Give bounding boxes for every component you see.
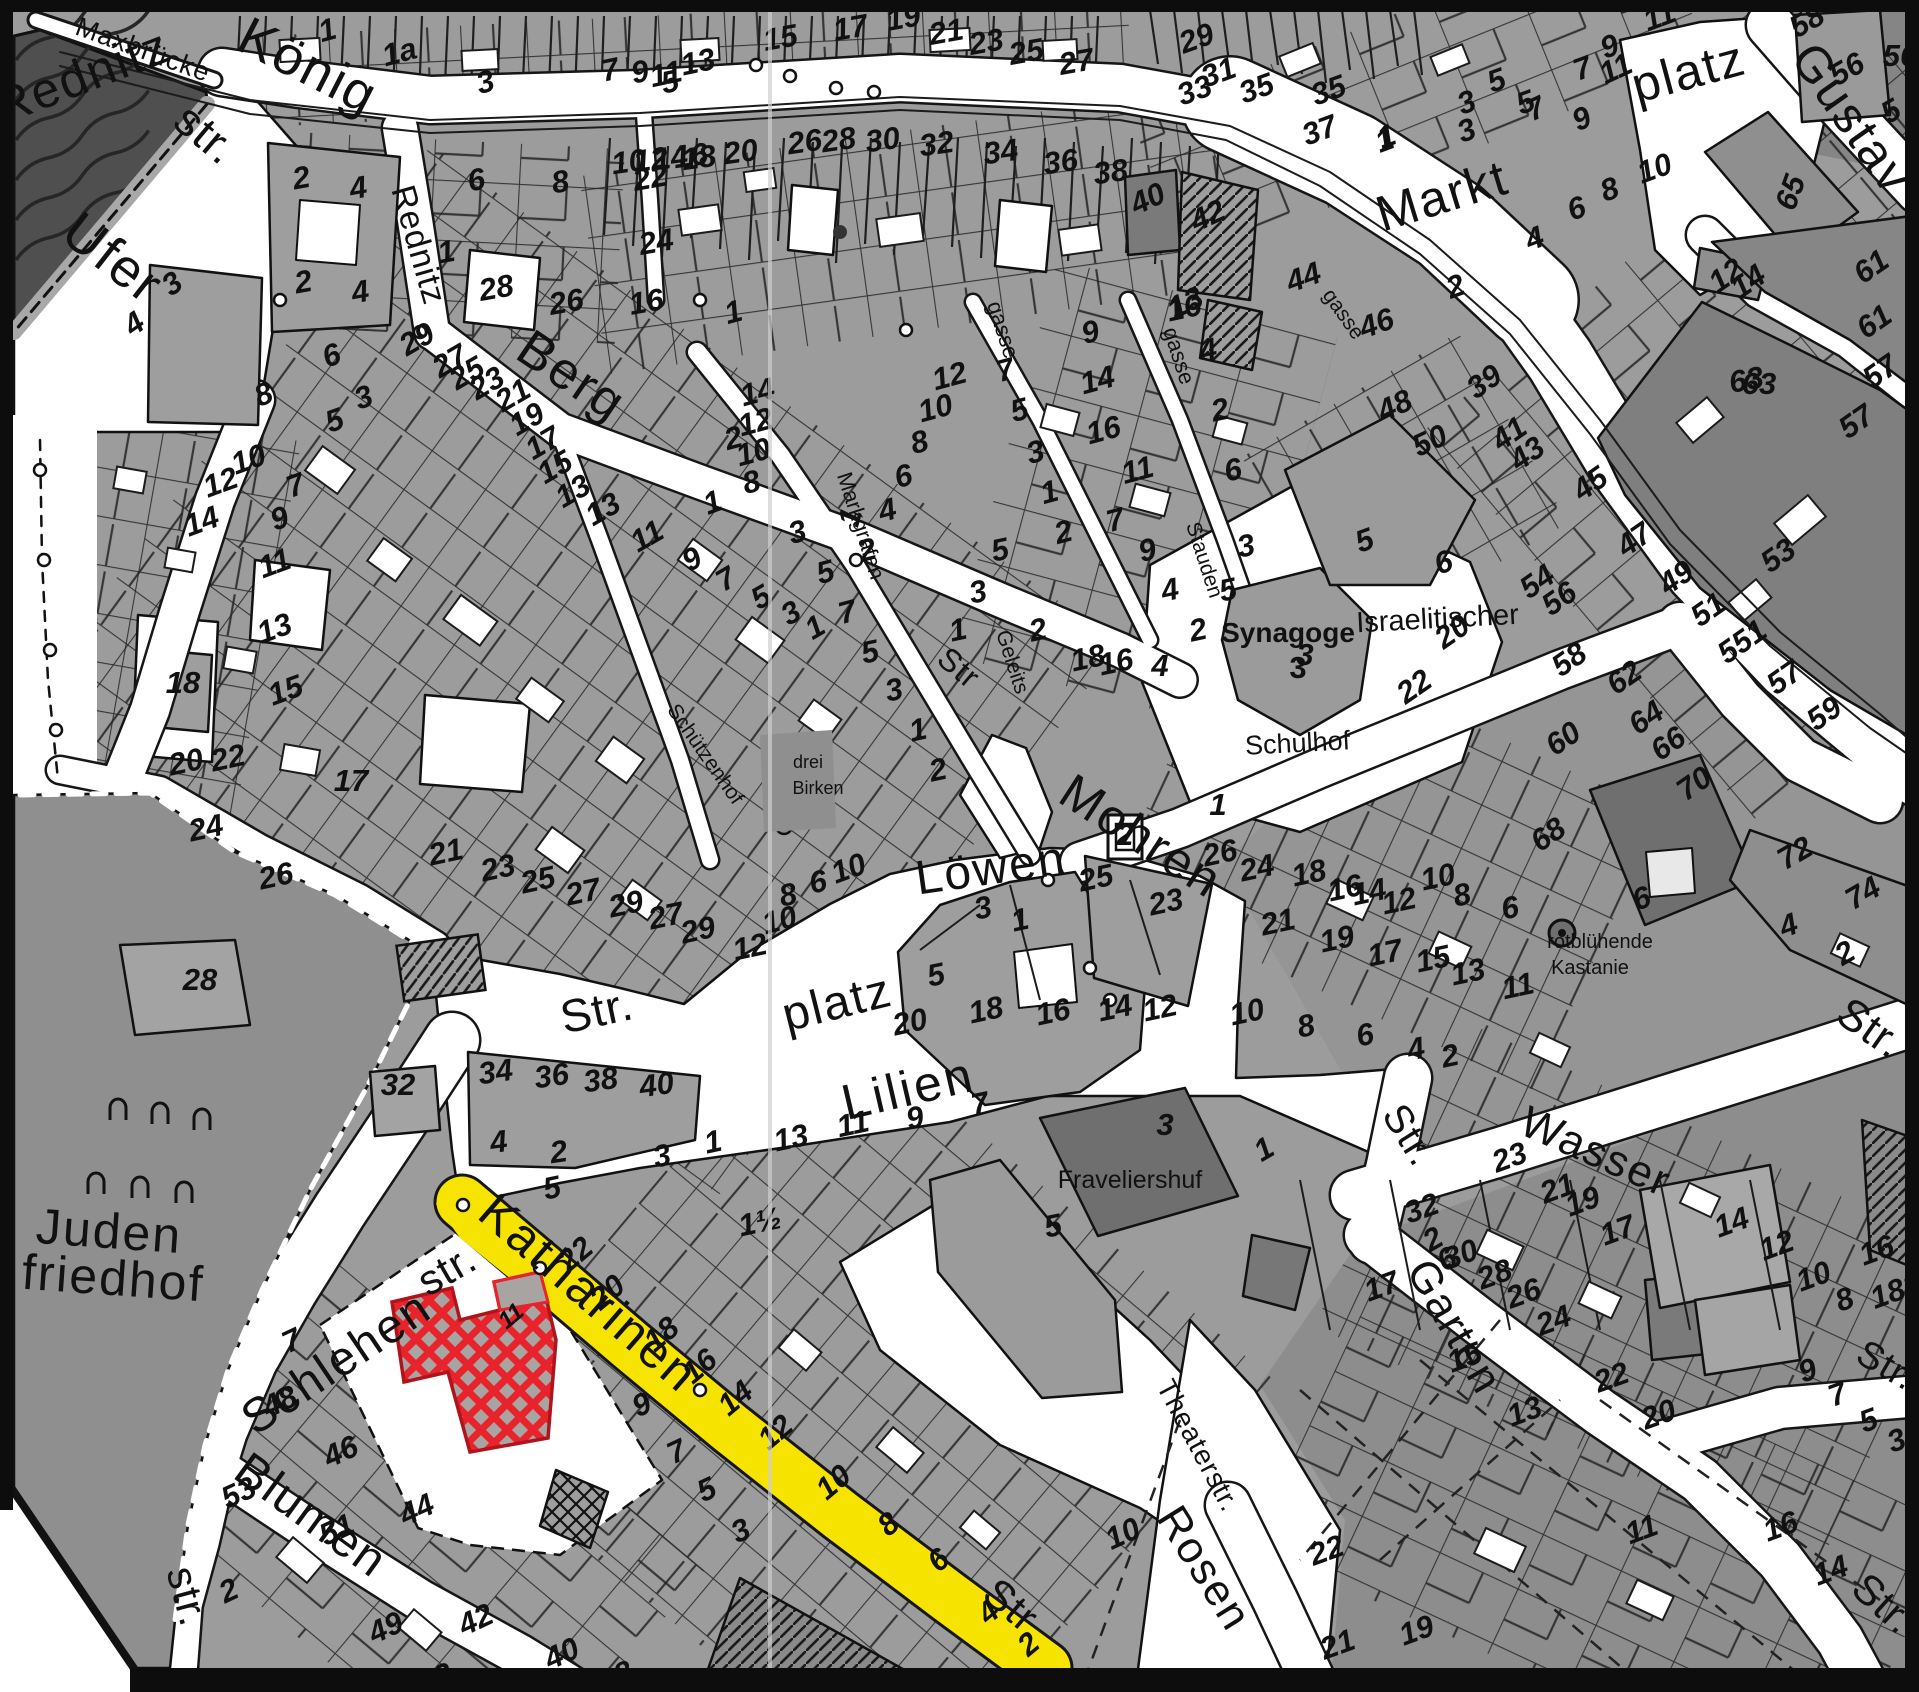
svg-text:Birken: Birken	[792, 778, 843, 798]
svg-text:32: 32	[381, 1067, 415, 1102]
svg-text:Schulhof: Schulhof	[1244, 725, 1351, 760]
svg-text:Kastanie: Kastanie	[1551, 957, 1629, 979]
svg-text:21: 21	[925, 11, 966, 52]
svg-text:13: 13	[770, 1117, 811, 1158]
svg-text:32: 32	[917, 124, 956, 163]
svg-text:15: 15	[760, 17, 801, 58]
svg-text:34: 34	[981, 132, 1020, 171]
svg-text:28: 28	[475, 267, 517, 308]
svg-text:21: 21	[1256, 901, 1298, 943]
svg-text:38: 38	[581, 1060, 621, 1100]
svg-text:16: 16	[626, 281, 667, 322]
svg-text:drei: drei	[793, 752, 823, 772]
svg-text:36: 36	[532, 1056, 572, 1096]
svg-text:23: 23	[965, 21, 1006, 62]
svg-text:25: 25	[1005, 31, 1047, 72]
svg-text:30: 30	[863, 120, 902, 159]
svg-text:24: 24	[1235, 847, 1277, 889]
svg-text:34: 34	[476, 1052, 515, 1091]
svg-text:21: 21	[424, 831, 466, 873]
svg-text:20: 20	[720, 132, 760, 172]
svg-text:16: 16	[671, 136, 711, 176]
svg-text:17: 17	[334, 763, 370, 798]
svg-text:28: 28	[818, 120, 859, 160]
svg-text:1: 1	[1209, 787, 1226, 822]
svg-text:63: 63	[1742, 366, 1776, 401]
svg-text:22: 22	[206, 737, 248, 779]
svg-text:20: 20	[164, 741, 206, 783]
svg-text:rotblühende: rotblühende	[1547, 931, 1653, 953]
svg-text:38: 38	[1091, 152, 1131, 192]
svg-text:28: 28	[182, 962, 218, 997]
svg-text:26: 26	[545, 281, 587, 322]
svg-text:12: 12	[1378, 880, 1419, 921]
svg-text:10: 10	[1226, 991, 1267, 1032]
svg-text:18: 18	[166, 665, 201, 700]
svg-text:12: 12	[1139, 987, 1180, 1028]
svg-text:14: 14	[1094, 987, 1135, 1028]
svg-text:3: 3	[1289, 650, 1306, 685]
svg-text:13: 13	[677, 41, 718, 82]
svg-text:Fraveliershuf: Fraveliershuf	[1058, 1166, 1203, 1194]
svg-text:4: 4	[1150, 648, 1168, 683]
svg-text:40: 40	[636, 1065, 676, 1105]
svg-text:24: 24	[635, 221, 676, 262]
svg-text:Synagoge: Synagoge	[1221, 617, 1355, 648]
svg-text:36: 36	[1041, 142, 1081, 182]
svg-text:13: 13	[1447, 951, 1488, 992]
svg-text:23: 23	[476, 847, 518, 889]
svg-text:24: 24	[184, 807, 226, 849]
svg-text:3: 3	[1156, 1107, 1173, 1142]
